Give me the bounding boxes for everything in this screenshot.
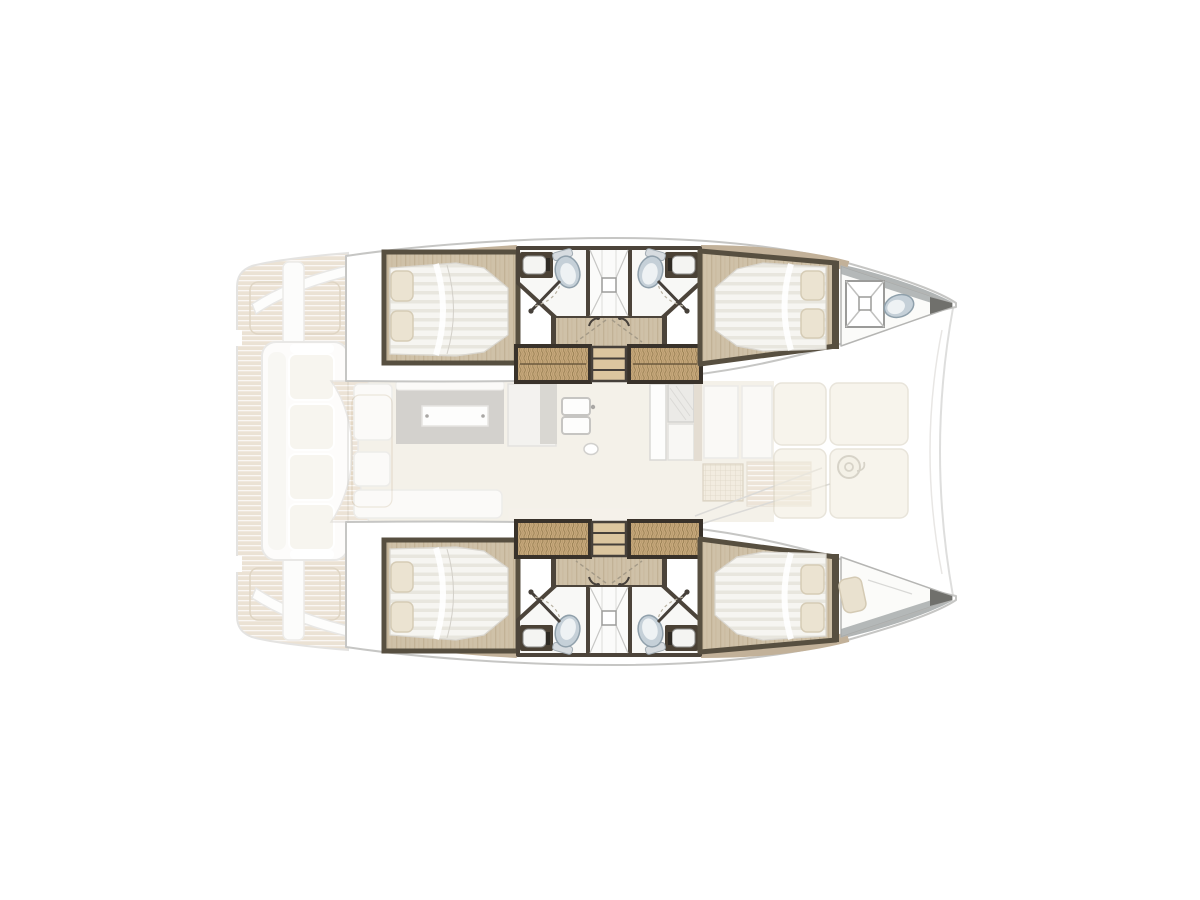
cockpit-strut	[283, 556, 304, 640]
galley-divider	[694, 383, 702, 461]
bench-cushion	[289, 504, 334, 550]
stern-step-notch	[233, 556, 242, 572]
bench-cushion	[289, 404, 334, 450]
basin-icon	[584, 444, 598, 455]
salon-galley	[331, 381, 830, 524]
sofa-cushion	[354, 490, 502, 518]
cabinet	[704, 386, 738, 458]
bench-cushion	[289, 454, 334, 500]
sun-pad-panel	[774, 449, 826, 518]
bench-armrest	[290, 550, 334, 559]
cockpit-strut	[283, 262, 304, 346]
catamaran-floor-plan	[0, 0, 1200, 900]
sofa-cushion	[354, 384, 392, 440]
port-hull	[346, 238, 956, 382]
starboard-hull	[346, 521, 956, 665]
sun-pad-panel	[774, 383, 826, 445]
refrigerator	[650, 384, 666, 460]
cabinet	[742, 386, 772, 458]
faucet-icon	[591, 405, 595, 409]
counter-grid	[703, 464, 743, 501]
sofa-cushion	[354, 452, 390, 486]
bench-armrest	[290, 344, 334, 353]
floor-plan-image	[0, 0, 1200, 900]
stern-step-notch	[233, 330, 242, 346]
tabletop	[422, 406, 488, 426]
sun-pad-panel	[830, 383, 908, 445]
hatch-grate-icon	[846, 281, 884, 327]
forward-crossbeam-arc	[940, 308, 953, 596]
double-sink	[562, 417, 590, 434]
double-sink	[562, 398, 590, 415]
bench-cushion	[289, 354, 334, 400]
aft-bench-seat	[262, 342, 348, 560]
dining-table	[396, 386, 504, 444]
